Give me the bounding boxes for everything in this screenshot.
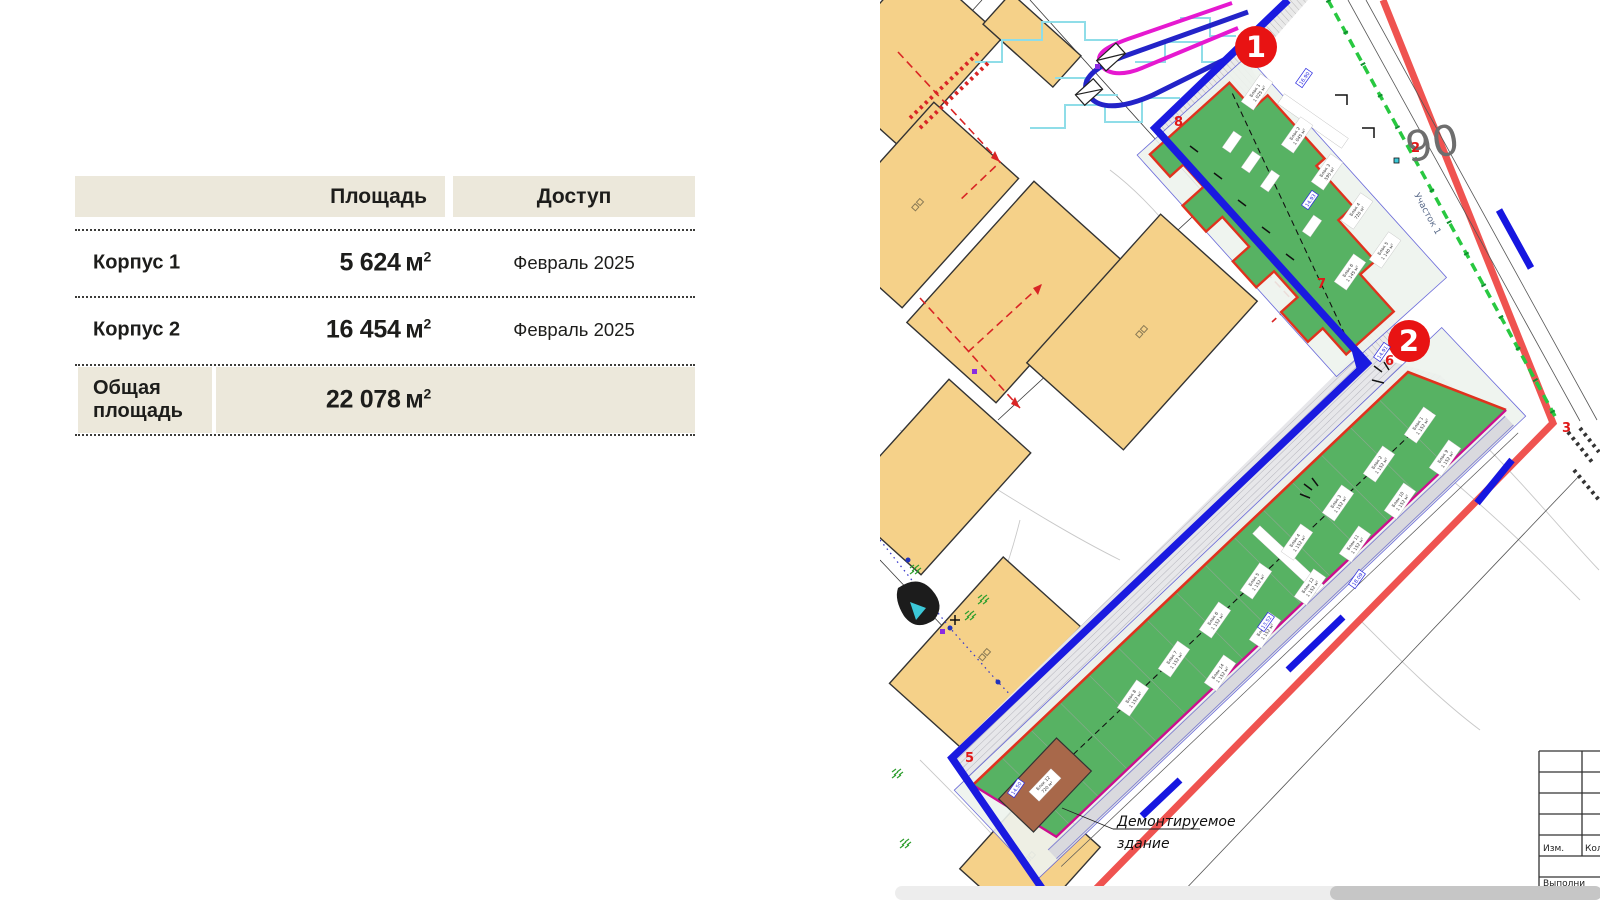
row-access-value: Февраль 2025 <box>453 252 695 274</box>
corner-number: 3 <box>1562 421 1571 436</box>
site-plan-viewer: 90 Участок 1 8 7 6 5 3 2 Демонтируемое з… <box>880 0 1600 900</box>
column-header-access: Доступ <box>453 176 695 217</box>
badge-1[interactable]: 1 <box>1235 26 1277 68</box>
corner-number: 5 <box>965 751 974 766</box>
demolition-note-line2: здание <box>1117 836 1170 852</box>
badge-2-number: 2 <box>1399 324 1419 358</box>
corner-number: 8 <box>1174 115 1183 130</box>
scrollbar-thumb[interactable] <box>1330 886 1600 900</box>
row-area-value: 16 454 м2 <box>75 315 431 344</box>
header-gap <box>445 176 453 217</box>
site-plan-drawing: 90 Участок 1 8 7 6 5 3 2 Демонтируемое з… <box>880 0 1600 900</box>
badge-2[interactable]: 2 <box>1388 320 1430 362</box>
row-area-value: 5 624 м2 <box>75 248 431 277</box>
corner-number: 7 <box>1317 277 1326 292</box>
dotted-separator <box>75 364 695 366</box>
table-row: Корпус 1 5 624 м2 Февраль 2025 <box>75 230 695 295</box>
screen: Площадь Доступ Корпус 1 5 624 м2 Февраль… <box>0 0 1600 900</box>
dotted-separator <box>75 434 695 436</box>
demolition-note-line1: Демонтируемое <box>1116 814 1236 830</box>
title-block-izm: Изм. <box>1543 844 1564 854</box>
badge-1-number: 1 <box>1246 30 1266 64</box>
table-row: Корпус 2 16 454 м2 Февраль 2025 <box>75 297 695 363</box>
table-row-total: Общая площадь 22 078 м2 <box>75 367 695 433</box>
row-access-value: Февраль 2025 <box>453 319 695 341</box>
title-block-kol: Кол <box>1585 844 1600 854</box>
corner-number: 6 <box>1385 354 1394 369</box>
row-area-value: 22 078 м2 <box>75 385 431 414</box>
horizontal-scrollbar[interactable] <box>895 886 1600 900</box>
table-header-row: Площадь Доступ <box>75 176 695 217</box>
corner-number: 2 <box>1411 141 1420 156</box>
column-header-area: Площадь <box>75 176 445 217</box>
